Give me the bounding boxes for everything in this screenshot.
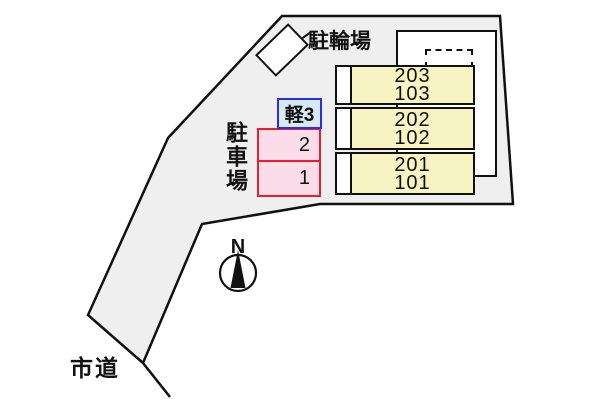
bicycle-parking-label: 駐輪場 [308,25,371,55]
north-compass-icon: N [220,236,256,291]
room-entry-strip [337,67,352,103]
parking-space-number: 2 [299,134,310,157]
parking-space-1: 1 [257,160,321,197]
road-edge-line [143,363,170,397]
parking-area-label: 駐車場 [222,121,248,193]
room-entry-strip [337,154,352,193]
room-numbers: 201 101 [352,154,473,193]
room-lower: 101 [394,174,430,192]
room-upper: 201 [394,156,430,174]
north-label: N [231,236,245,258]
room-lower: 103 [394,85,430,103]
room-upper: 202 [394,111,430,129]
room-block-202-102: 202 102 [335,107,475,150]
room-entry-strip [337,109,352,148]
kei-parking-space: 軽3 [277,98,322,129]
site-plan-canvas: N [0,0,600,400]
room-block-203-103: 203 103 [335,65,475,105]
room-lower: 102 [394,129,430,147]
site-plan: N 203 103 202 102 201 101 軽3 2 1 駐輪場 駐 [0,0,600,400]
room-numbers: 202 102 [352,109,473,148]
parking-space-2: 2 [257,128,321,162]
room-block-201-101: 201 101 [335,152,475,195]
room-numbers: 203 103 [352,67,473,103]
city-road-label: 市道 [70,349,120,383]
parking-space-number: 1 [299,167,310,190]
